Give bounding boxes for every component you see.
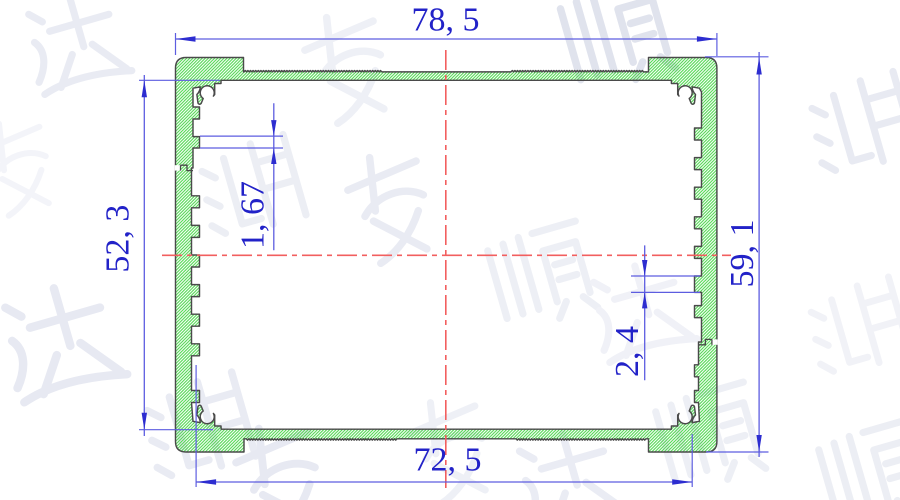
svg-text:59, 1: 59, 1	[724, 220, 761, 288]
svg-text:78, 5: 78, 5	[412, 2, 480, 39]
svg-text:52, 3: 52, 3	[100, 205, 137, 273]
svg-text:2, 4: 2, 4	[609, 326, 646, 377]
svg-text:72, 5: 72, 5	[414, 442, 482, 479]
svg-text:1, 67: 1, 67	[234, 181, 271, 249]
